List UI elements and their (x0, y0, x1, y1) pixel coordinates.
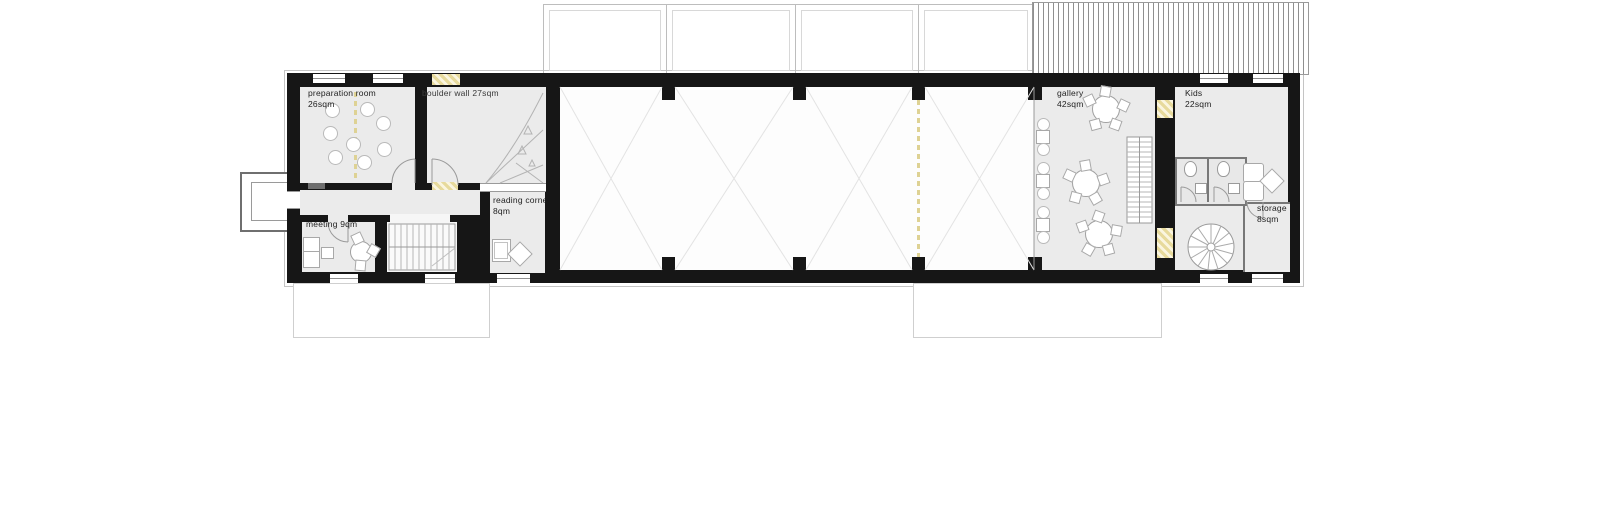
stool (1037, 231, 1050, 244)
door-opening (392, 183, 415, 190)
gallery-area: 42sqm (1057, 99, 1084, 110)
hatched-opening (1157, 228, 1173, 258)
reading-corner-label: reading corner (493, 195, 545, 206)
preparation-room-area: 26sqm (308, 99, 376, 110)
canopy-bay (544, 5, 667, 74)
stool (377, 142, 392, 157)
stool (346, 137, 361, 152)
storage-area: 8sqm (1257, 214, 1287, 225)
window (1200, 274, 1228, 283)
chair (1110, 224, 1123, 237)
axis-dashed-line (917, 100, 920, 257)
hatched-opening (1157, 100, 1173, 118)
stool (328, 150, 343, 165)
kids-room-label: Kids (1185, 88, 1212, 99)
wc-icon (1217, 161, 1230, 177)
toilet-divider-wall (1207, 157, 1209, 202)
sofa (1243, 181, 1264, 201)
window (373, 74, 403, 83)
sink-icon (1228, 183, 1240, 194)
roof-deck-decking (1032, 2, 1309, 75)
stool (323, 126, 338, 141)
pilaster (793, 257, 806, 270)
window (1200, 74, 1228, 83)
reading-corner-area: 8qm (493, 206, 545, 217)
stairwell-main (387, 222, 457, 272)
canopy-bay-inner-line (924, 10, 1028, 71)
window (330, 274, 358, 283)
pilaster (1028, 87, 1042, 100)
sideboard (308, 183, 325, 189)
wc-icon (1184, 161, 1197, 177)
cabinet (303, 237, 320, 252)
canopy-bay (796, 5, 919, 74)
meeting-room-label: meeting 9qm (306, 219, 357, 230)
side-table (1036, 218, 1050, 232)
stairwell-spiral (1175, 202, 1243, 270)
cabinet (303, 251, 320, 268)
window (313, 74, 345, 83)
entrance-vestibule-inner (251, 182, 289, 221)
side-table (1036, 174, 1050, 188)
pilaster (1028, 257, 1042, 270)
hatched-opening (432, 182, 458, 190)
chair (355, 260, 367, 272)
glazed-partition (480, 183, 546, 192)
window (425, 274, 455, 283)
stair-opening (390, 214, 450, 222)
stool (357, 155, 372, 170)
room-boulder-wall (427, 87, 546, 183)
pilaster (662, 87, 675, 100)
kids-room-area: 22sqm (1185, 99, 1212, 110)
corridor (300, 190, 480, 215)
window (1252, 274, 1283, 283)
boulder-wall-label: boulder wall 27sqm (422, 88, 499, 99)
terrace-left-outline (293, 283, 490, 338)
pilaster (912, 257, 925, 270)
storage-label: storage (1257, 203, 1287, 214)
stool (1037, 187, 1050, 200)
canopy-bay (667, 5, 796, 74)
entrance-door-opening (287, 191, 300, 209)
main-hall (560, 87, 1034, 270)
pilaster (912, 87, 925, 100)
side-table (1036, 130, 1050, 144)
canopy-bay-inner-line (801, 10, 913, 71)
canopy-outline (543, 4, 1034, 75)
sink-icon (1195, 183, 1207, 194)
pilaster (662, 257, 675, 270)
canopy-bay-inner-line (549, 10, 661, 71)
armchair-cushion (494, 242, 508, 259)
stool (376, 116, 391, 131)
side-table (321, 247, 334, 259)
hatched-opening (432, 74, 460, 85)
chair (1099, 85, 1112, 98)
window (497, 274, 530, 283)
stool (1037, 143, 1050, 156)
window (1253, 74, 1283, 83)
gallery-label: gallery (1057, 88, 1084, 99)
chair (1079, 159, 1092, 172)
terrace-right-outline (913, 283, 1162, 338)
canopy-bay-inner-line (672, 10, 790, 71)
canopy-bay (919, 5, 1033, 74)
preparation-room-label: preparation room (308, 88, 376, 99)
pilaster (793, 87, 806, 100)
floor-plan: reading corner 8qm (0, 0, 1600, 509)
